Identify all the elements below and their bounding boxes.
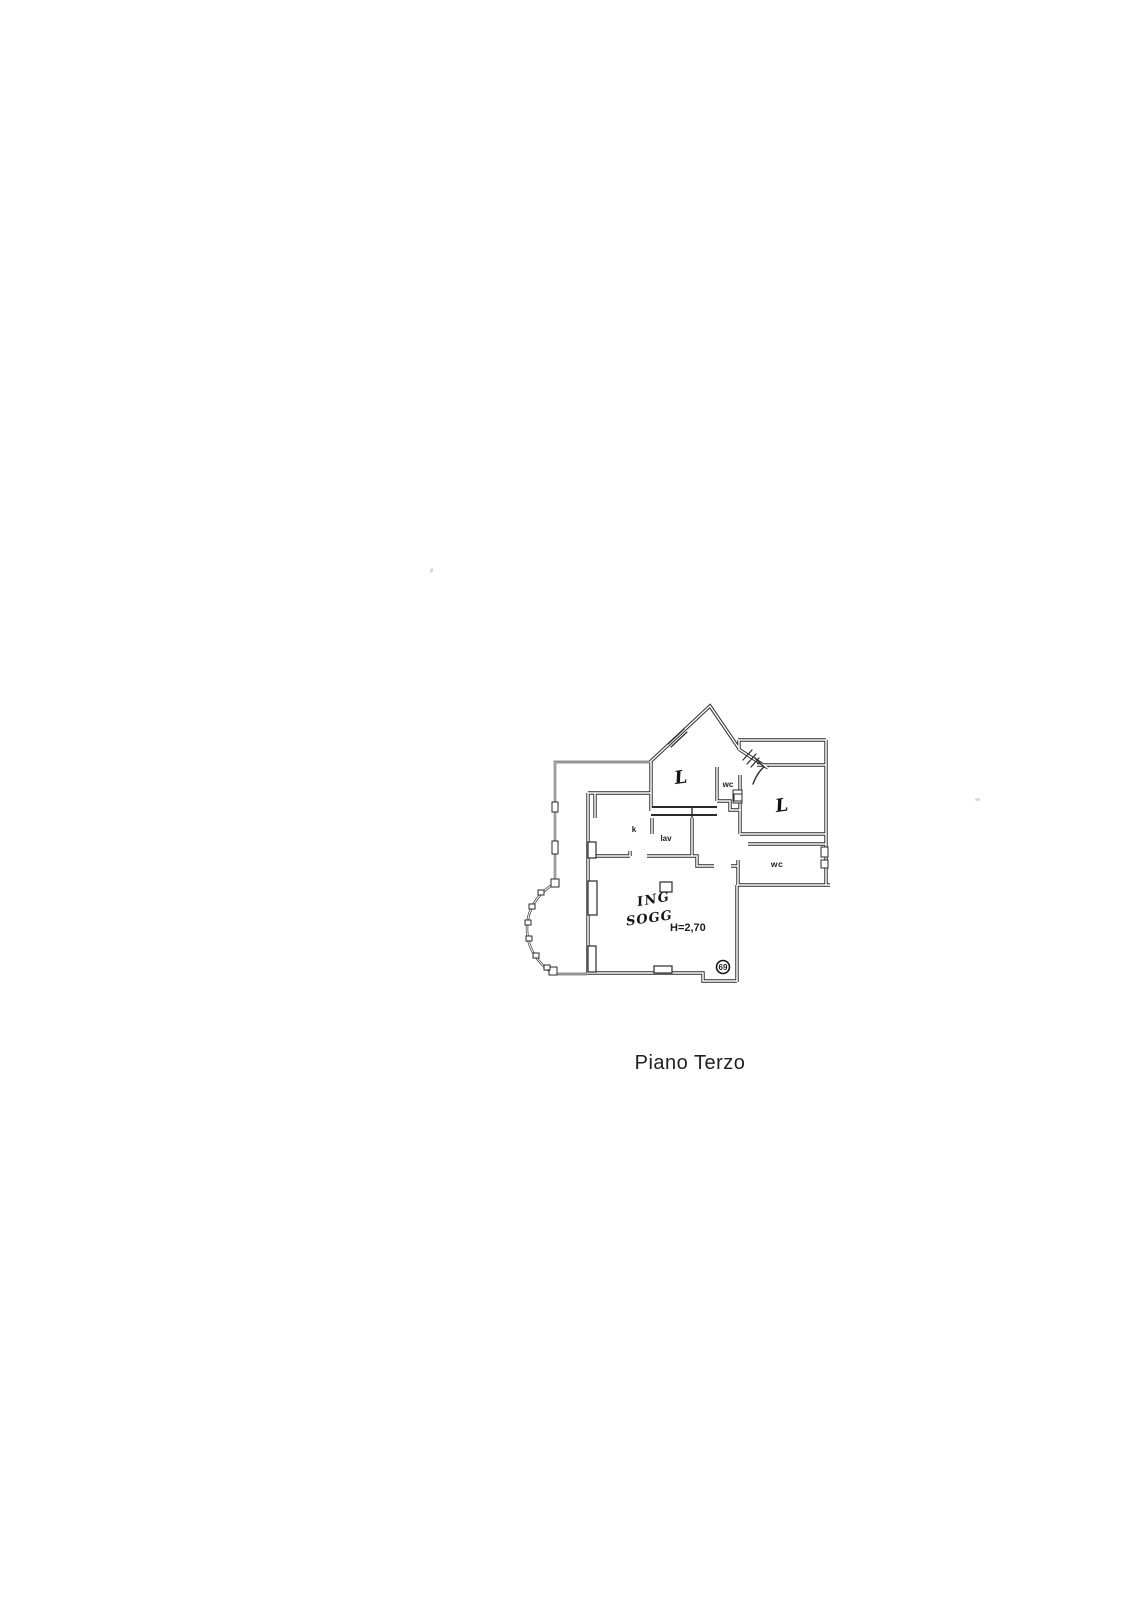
label-laundry: lav [660, 834, 672, 843]
stamp-number-text: 69 [719, 963, 728, 972]
scan-speck [975, 798, 980, 801]
door-swing-icon [753, 758, 764, 784]
plan-caption: Piano Terzo [520, 1052, 860, 1075]
scan-speck [429, 568, 434, 574]
door-threshold [654, 966, 672, 973]
label-wc-bottom: wc [770, 859, 783, 869]
handwritten-L-top-bedroom: L [672, 767, 688, 790]
scanned-page: wc k lav wc H=2,70 L L ING SOGG 69 Piano… [0, 0, 1131, 1600]
label-kitchen: k [632, 825, 637, 834]
handwritten-ing: ING [635, 890, 672, 911]
room-fixtures [588, 842, 672, 973]
handwritten-L-right-bedroom: L [773, 795, 789, 818]
floor-plan-drawing: wc k lav wc H=2,70 L L ING SOGG 69 [500, 670, 840, 990]
stamp-number: 69 [717, 961, 730, 974]
label-height-note: H=2,70 [670, 922, 706, 934]
wall-hollow-cores [527, 706, 830, 982]
label-wc-top: wc [722, 780, 734, 789]
handwritten-sogg: SOGG [625, 908, 674, 929]
window-ticks [525, 790, 828, 975]
floor-plan-svg: wc k lav wc H=2,70 L L ING SOGG 69 [500, 670, 840, 990]
